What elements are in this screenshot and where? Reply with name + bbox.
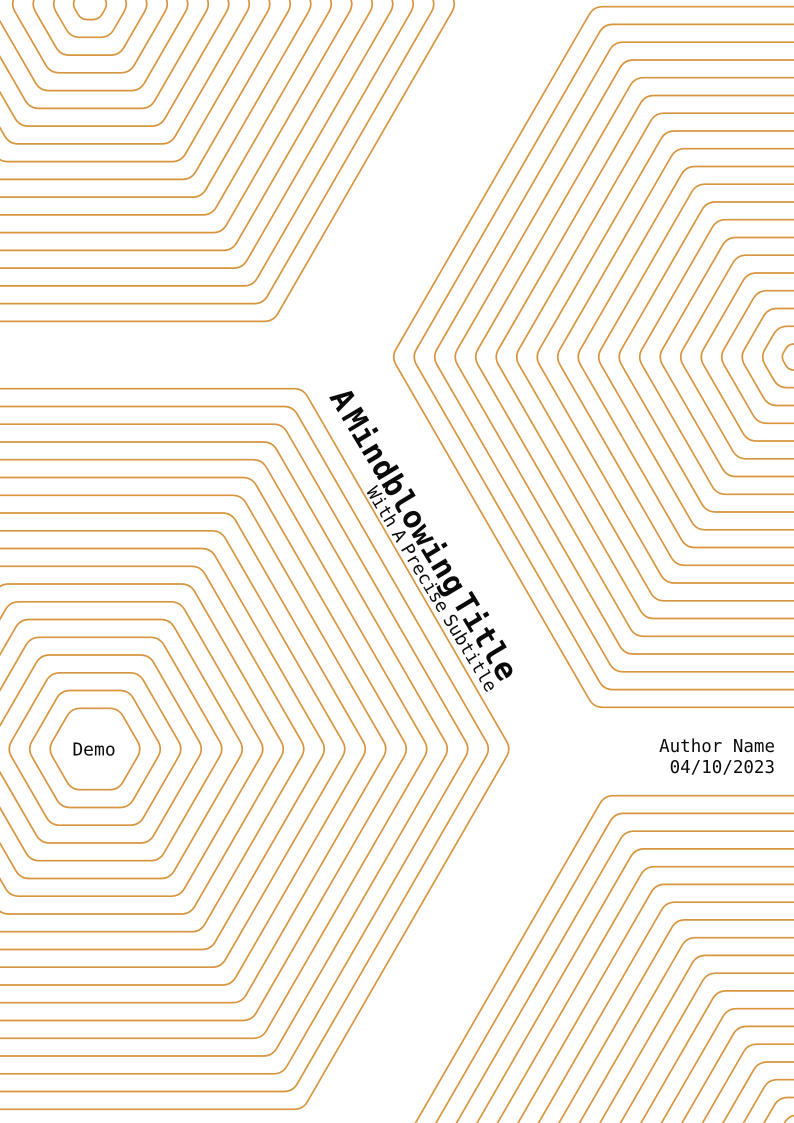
title-page: A Mindblowing Title With A Precise Subti…	[0, 0, 794, 1123]
edition-label: Demo	[72, 740, 115, 761]
hexagon-pattern	[0, 0, 794, 1123]
author-name: Author Name	[659, 737, 775, 758]
publish-date: 04/10/2023	[659, 758, 775, 779]
author-block: Author Name 04/10/2023	[659, 737, 775, 778]
